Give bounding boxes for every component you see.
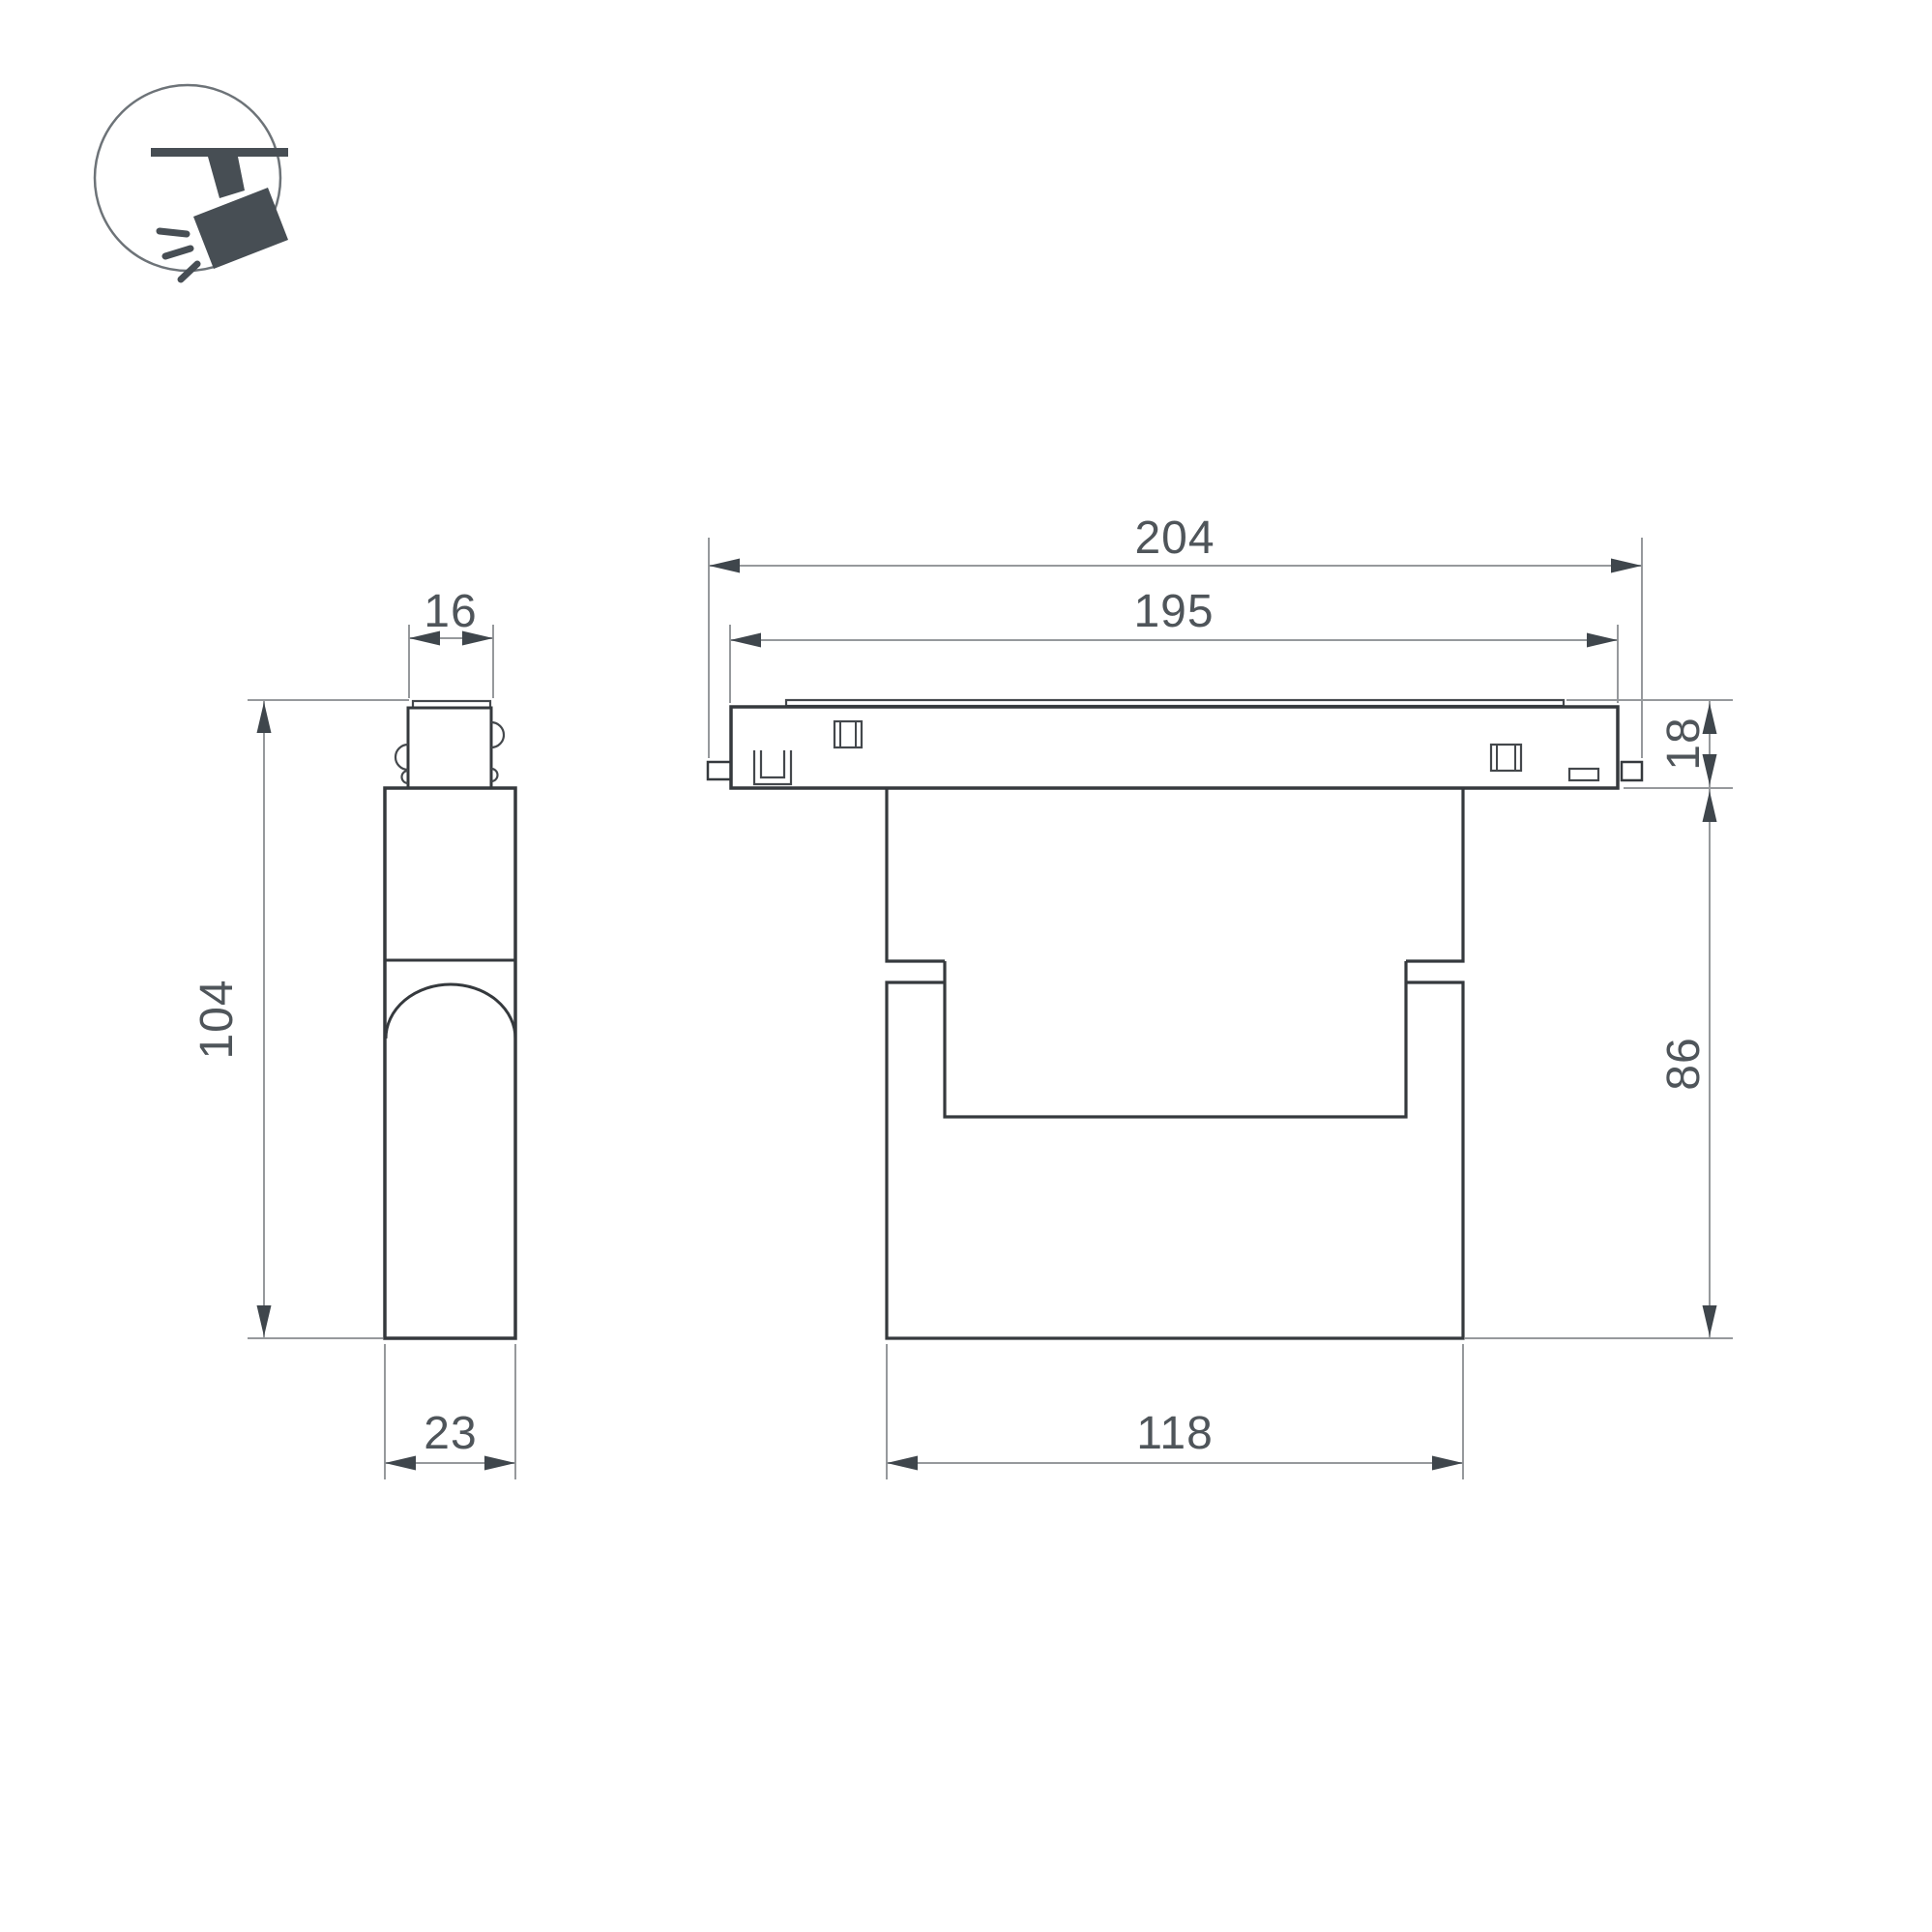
dim-label-side-top-width: 16 [424,586,477,637]
side-clip-left-bump [395,745,408,770]
dim-label-front-body-width: 118 [1136,1408,1214,1459]
icon-light-rays [160,231,197,279]
arrow-icon [709,559,740,573]
front-track-adapter [731,707,1618,788]
dim-204-lines [709,538,1642,758]
arrow-icon [257,702,272,733]
arrow-icon [257,1305,272,1336]
side-body [385,788,515,1338]
front-right-contact-detail [1497,745,1515,771]
arrow-icon [1611,559,1642,573]
dim-label-front-inner-width: 195 [1133,586,1214,637]
arrow-icon [1587,633,1618,648]
technical-drawing-canvas: 16 204 195 104 18 86 23 118 [0,0,1932,1932]
track-spotlight-icon [95,85,288,279]
arrow-icon [484,1456,515,1471]
arrow-icon [887,1456,918,1471]
front-body-outline [887,788,1463,1338]
icon-track-bar [151,148,288,157]
dim-label-side-bottom-width: 23 [424,1408,477,1459]
arrow-icon [730,633,761,648]
front-view [708,700,1642,1338]
arrow-icon [1432,1456,1463,1471]
side-head-dome [386,984,515,1039]
front-left-tab [708,762,731,779]
side-view [385,701,515,1338]
front-left-contact [834,721,862,747]
dim-label-front-track-height: 18 [1658,717,1710,770]
icon-mount-stem [208,157,245,198]
arrow-icon [1703,791,1717,822]
front-u-clip [754,750,791,784]
arrow-icon [1703,1305,1717,1336]
dim-label-side-height: 104 [191,979,243,1059]
dimension-arrows [257,559,1717,1471]
arrow-icon [385,1456,416,1471]
dim-label-front-body-height: 86 [1658,1037,1710,1090]
front-left-contact-detail [840,721,856,747]
drawing-sheet: 16 204 195 104 18 86 23 118 [0,0,1932,1932]
front-top-plate [786,700,1564,706]
side-adapter-box [408,708,491,788]
front-right-slot [1569,769,1598,780]
icon-lamp-head [193,188,288,269]
side-clip-right-bump [491,722,504,747]
front-right-tab [1622,762,1642,780]
dimension-labels: 16 204 195 104 18 86 23 118 [191,512,1710,1459]
dim-label-front-total-width: 204 [1134,512,1215,564]
front-right-contact [1491,745,1521,771]
